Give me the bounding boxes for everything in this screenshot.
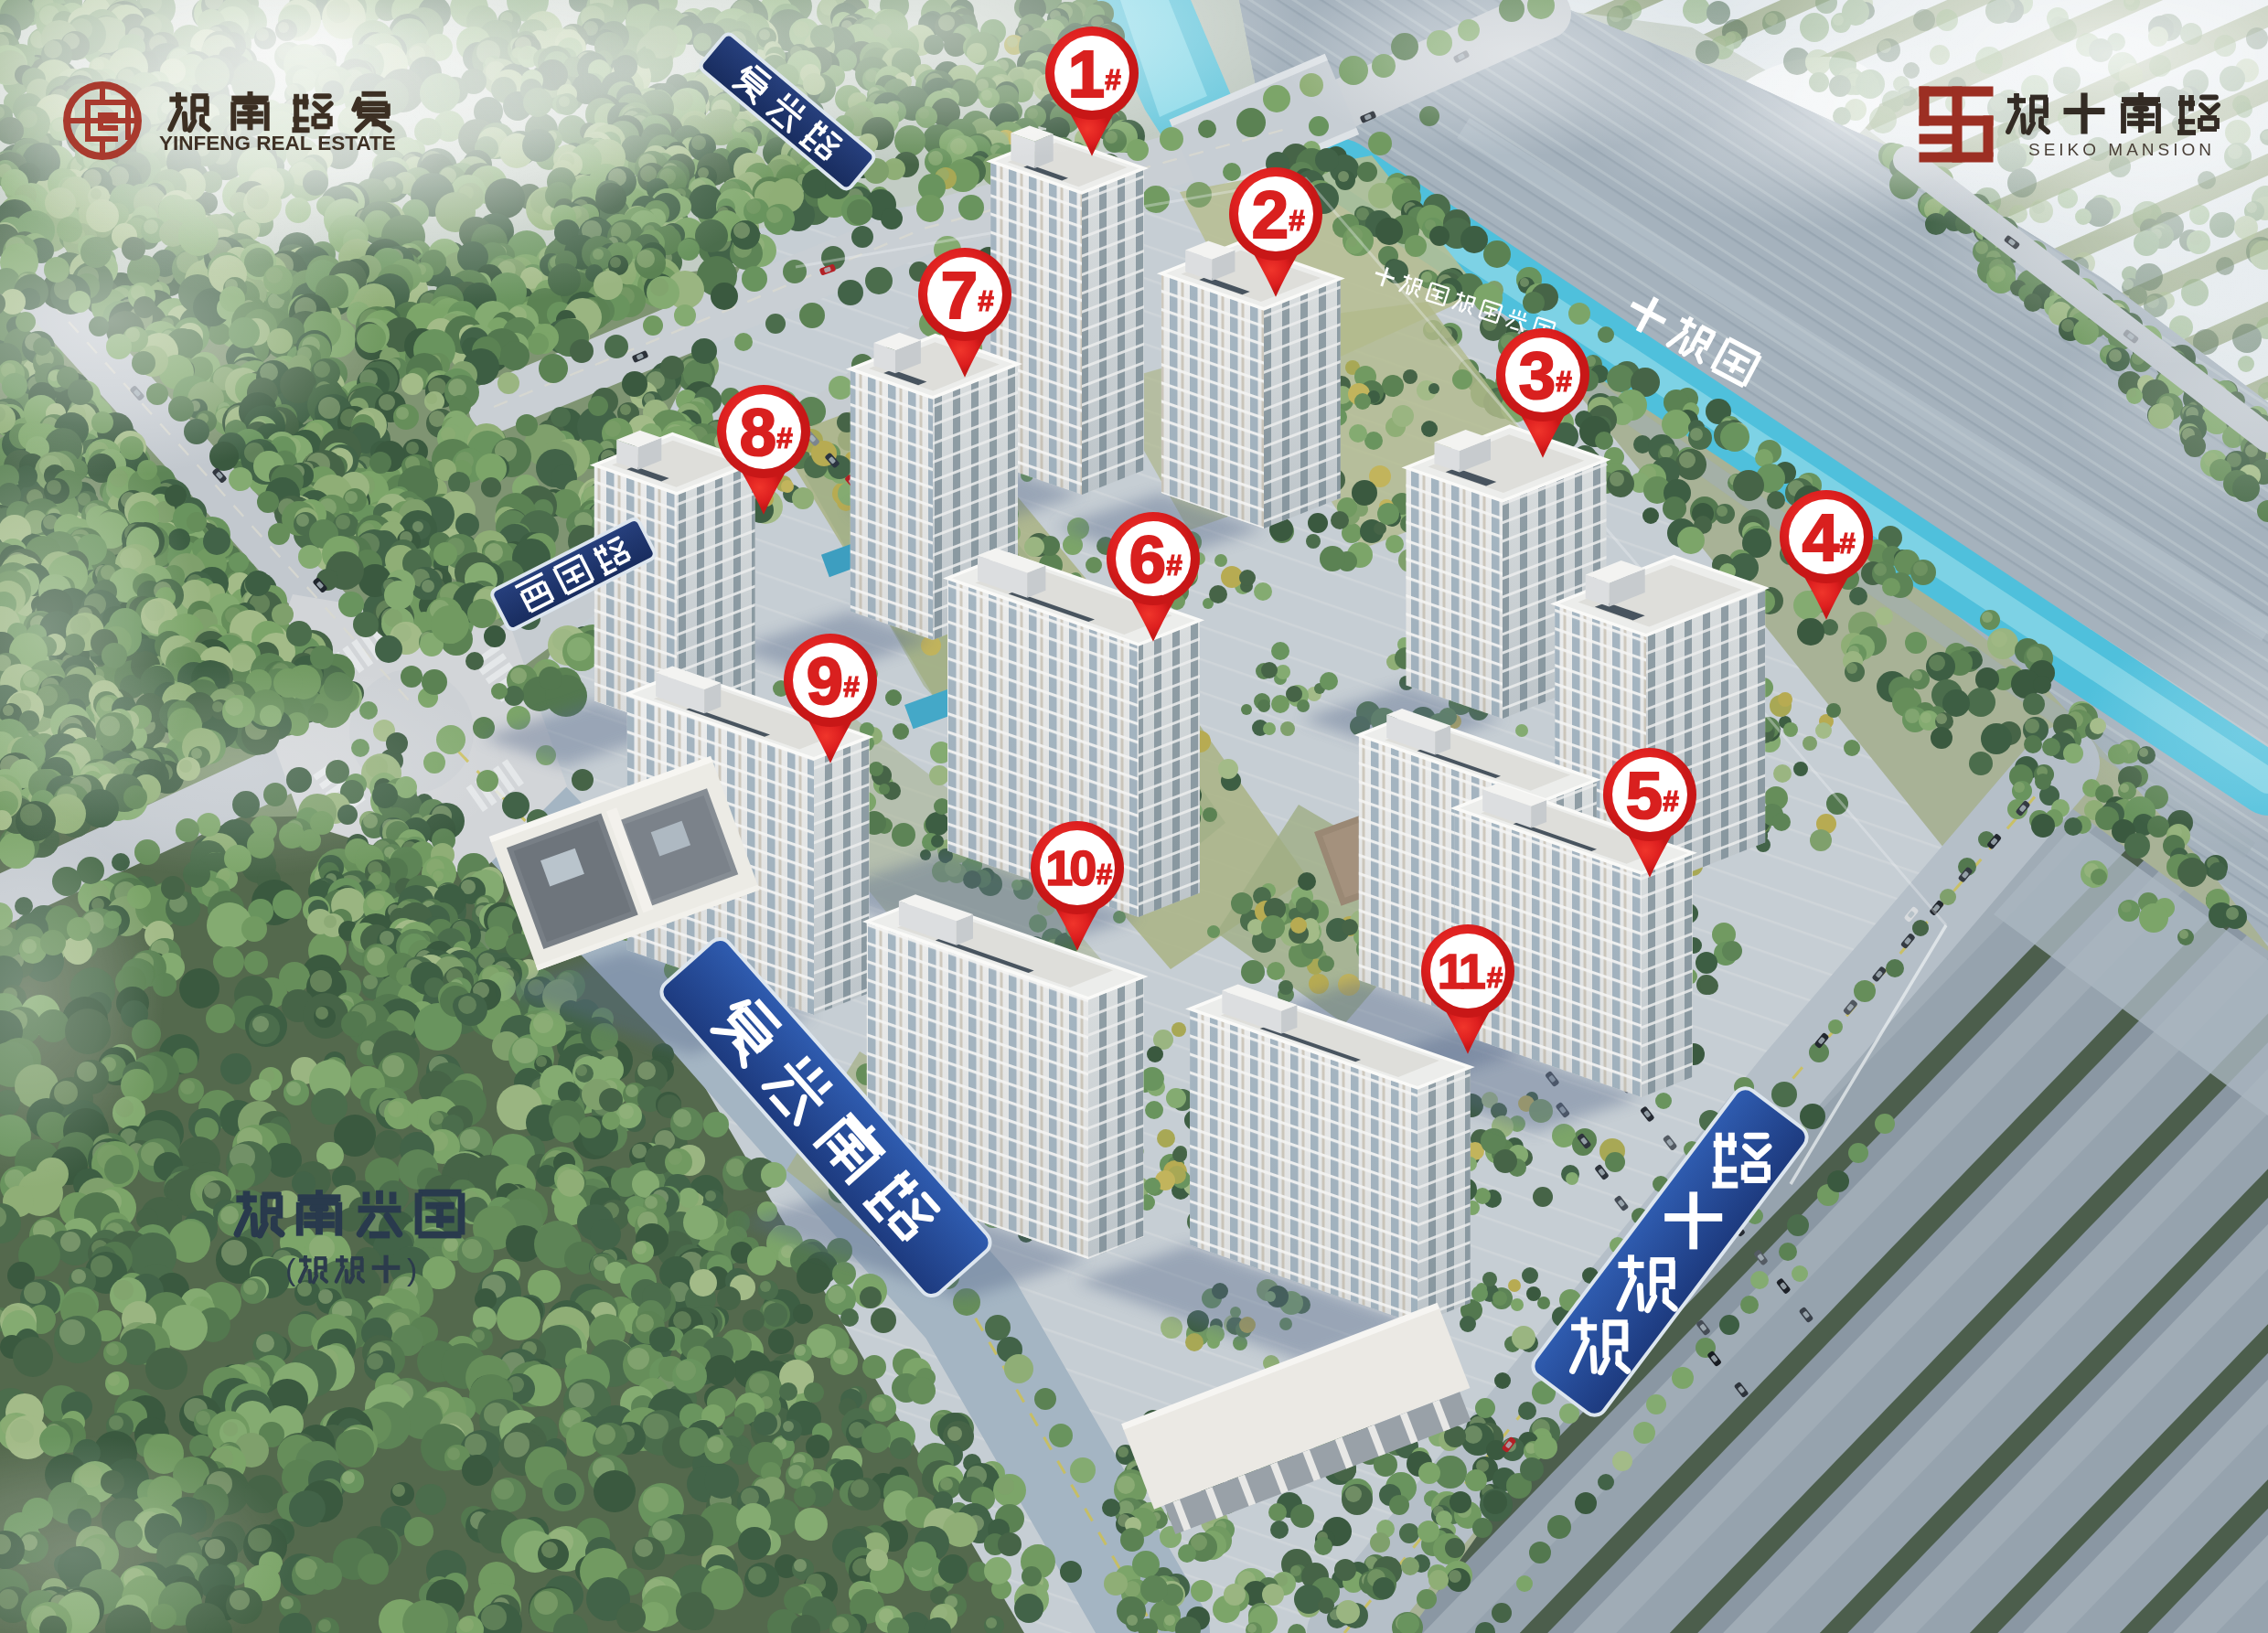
svg-text:3: 3: [1519, 338, 1556, 412]
svg-text:1: 1: [1068, 37, 1105, 111]
svg-text:7: 7: [941, 258, 978, 332]
svg-text:#: #: [1097, 858, 1113, 891]
svg-text:2: 2: [1252, 177, 1289, 251]
svg-text:#: #: [1663, 784, 1679, 817]
svg-text:11: 11: [1438, 944, 1485, 998]
svg-text:6: 6: [1129, 522, 1166, 596]
svg-text:#: #: [1289, 204, 1305, 237]
svg-text:10: 10: [1045, 840, 1095, 895]
svg-text:): ): [407, 1252, 417, 1286]
svg-text:9: 9: [807, 644, 843, 718]
svg-text:#: #: [1556, 365, 1572, 398]
svg-text:YINFENG REAL ESTATE: YINFENG REAL ESTATE: [159, 132, 396, 155]
svg-text:#: #: [1839, 527, 1856, 560]
svg-text:4: 4: [1803, 500, 1839, 574]
svg-text:(: (: [285, 1252, 296, 1286]
svg-text:#: #: [978, 284, 994, 317]
svg-text:#: #: [1166, 549, 1182, 582]
svg-text:#: #: [776, 422, 793, 454]
svg-text:5: 5: [1626, 758, 1663, 832]
svg-text:#: #: [1105, 63, 1121, 96]
svg-text:#: #: [843, 670, 860, 703]
svg-text:#: #: [1487, 961, 1503, 994]
svg-text:SEIKO MANSION: SEIKO MANSION: [2028, 140, 2215, 159]
svg-text:8: 8: [740, 395, 776, 469]
